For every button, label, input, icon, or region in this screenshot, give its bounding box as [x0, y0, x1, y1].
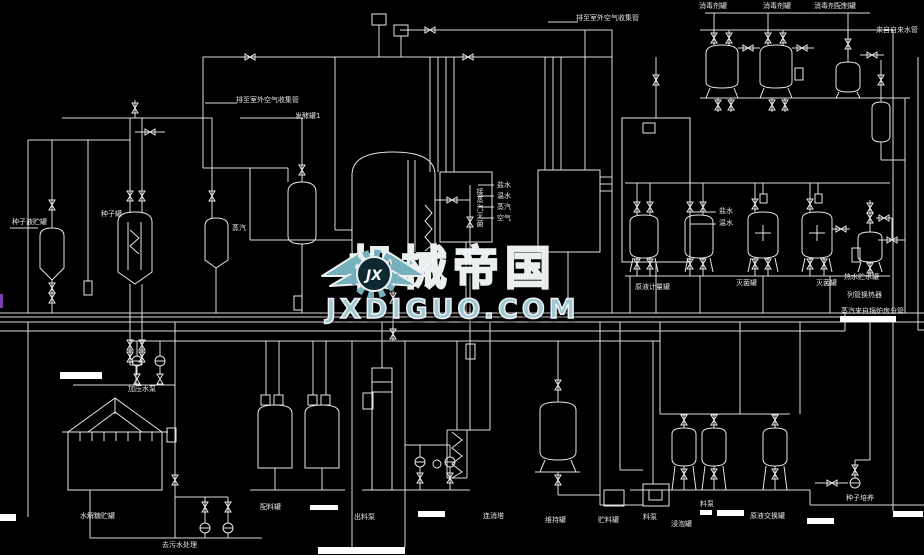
- logo-initials: JX: [363, 268, 383, 284]
- vessel-disinfectant-mix: [836, 62, 860, 98]
- watermark: JX 机械帝国 JXDIGUO.COM: [320, 232, 580, 325]
- label-feed-pump-1: 料泵: [643, 513, 657, 521]
- equipment-box-4: [604, 490, 624, 506]
- label-feed-pump-2: 料泵: [700, 500, 714, 508]
- instrument-rects: [84, 14, 860, 442]
- label-tap-water: 来自自来水管: [876, 26, 918, 34]
- label-sterilizer-2: 灭菌罐: [816, 279, 837, 287]
- label-disinfectant-1: 消毒剂罐: [699, 2, 727, 10]
- label-booster-pump: 加压水泵: [128, 385, 156, 393]
- vessel-mid: [288, 182, 316, 244]
- label-tube-exchanger: 列管换热器: [847, 291, 882, 299]
- label-vent-header-top: 排至室外空气收集管: [576, 14, 639, 22]
- label-disinfectant-mix: 消毒剂配制罐: [814, 2, 856, 10]
- label-metering-tank: 原液计量罐: [635, 283, 670, 291]
- vessel-batching-1: [258, 405, 292, 468]
- label-sterilizer-column: 连消塔: [483, 512, 504, 520]
- pump-icons: [132, 356, 860, 533]
- label-seed-tank: 种子罐: [101, 210, 122, 218]
- coil-exchanger: [452, 432, 462, 478]
- equipment-box-5: [643, 484, 669, 506]
- label-steam-small: 蒸汽: [232, 224, 246, 232]
- label-disinfectant-2: 消毒剂罐: [763, 2, 791, 10]
- label-vent-header-left: 排至室外空气收集管: [236, 96, 299, 104]
- vessel-sterilizer-1: [748, 212, 778, 272]
- label-warm-water: 温水: [497, 192, 511, 200]
- vessel-metering: [630, 215, 658, 272]
- winged-gear-logo-icon: JX: [320, 232, 428, 312]
- label-brine: 盐水: [497, 181, 511, 189]
- cad-drawing-stage: 排至室外空气收集管 排至室外空气收集管 发酵罐1 种子液贮罐 种子罐 消毒剂罐 …: [0, 0, 924, 555]
- label-soaking-tank: 浸泡罐: [671, 520, 692, 528]
- label-seed-liquid-tank: 种子液贮罐: [12, 218, 47, 226]
- label-sugar-silo: 水解糖贮罐: [80, 512, 115, 520]
- label-steam: 蒸汽: [497, 203, 511, 211]
- vessel-seed-liquid-tank: [40, 228, 64, 280]
- label-hot-water-tank: 热水贮水罐: [844, 273, 879, 281]
- column-continuous-sterilizer: [372, 368, 392, 490]
- label-steam-from-boiler: 蒸汽来自锅炉房分管: [841, 307, 904, 315]
- label-batching-tank: 配料罐: [260, 503, 281, 511]
- silo-hydrolysis-sugar-tank: [62, 398, 168, 490]
- vessel-right-edge: [872, 102, 890, 142]
- label-air: 空气: [497, 214, 511, 222]
- label-fermenter-1: 发酵罐1: [295, 112, 320, 120]
- equipment-box-3: [622, 118, 690, 262]
- vessel-holding-tank: [540, 402, 576, 472]
- scan-artifact: [0, 294, 3, 308]
- label-discharge-pump: 出料泵: [354, 513, 375, 521]
- label-storage-tank: 贮料罐: [598, 516, 619, 524]
- label-exchange-tank: 原液交换罐: [750, 512, 785, 520]
- label-warm-water-2: 温水: [719, 219, 733, 227]
- label-sterilizer-1: 灭菌罐: [736, 279, 757, 287]
- vessel-sterilizer-2: [802, 212, 832, 272]
- vessel-seed-tank: [118, 212, 152, 284]
- label-holding-tank: 维持罐: [545, 516, 566, 524]
- vessel-disinfectant-1: [706, 45, 738, 98]
- label-seed-culture: 种子培养: [846, 494, 874, 502]
- vessel-batching-2: [305, 405, 339, 468]
- label-to-wastewater: 去污水处理: [162, 541, 197, 549]
- label-steam-sterilize: 接蒸汽灭菌: [476, 188, 484, 228]
- vessel-disinfectant-2: [760, 45, 792, 98]
- vessel-small-left: [205, 218, 228, 268]
- label-brine-2: 盐水: [719, 207, 733, 215]
